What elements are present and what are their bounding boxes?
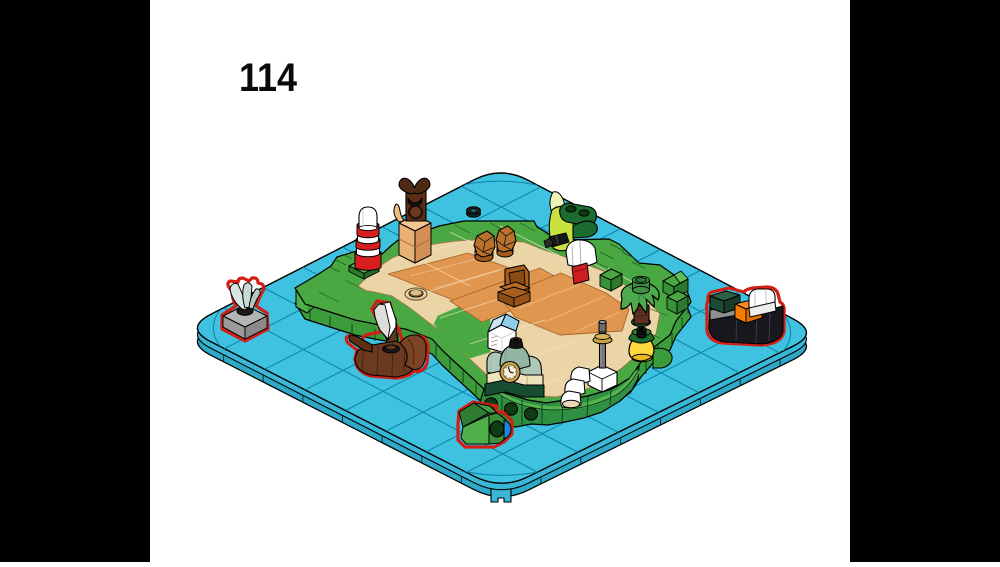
svg-text:114: 114 [239,56,298,100]
